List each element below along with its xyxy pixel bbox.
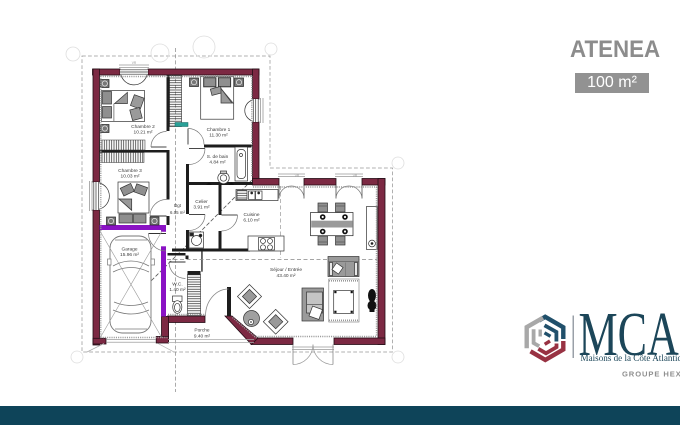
svg-text:Chambre 2: Chambre 2	[131, 124, 155, 130]
svg-text:Maisons de la Côte Atlantique: Maisons de la Côte Atlantique	[581, 353, 680, 363]
svg-text:Séjour / Entrée: Séjour / Entrée	[270, 267, 302, 273]
svg-text:VR: VR	[353, 174, 358, 178]
svg-text:43.40 m²: 43.40 m²	[277, 273, 296, 279]
svg-text:6.10 m²: 6.10 m²	[243, 218, 260, 224]
svg-text:Dgt: Dgt	[174, 203, 182, 208]
svg-text:9.40 m²: 9.40 m²	[194, 334, 211, 340]
svg-text:15.96 m²: 15.96 m²	[120, 252, 139, 258]
svg-text:Chambre 3: Chambre 3	[118, 168, 142, 174]
svg-text:VR: VR	[295, 174, 300, 178]
svg-text:Celier: Celier	[195, 199, 208, 205]
svg-text:GROUPE HEXAOM: GROUPE HEXAOM	[622, 370, 680, 379]
svg-text:Porche: Porche	[194, 328, 210, 334]
svg-text:Chambre 1: Chambre 1	[207, 127, 231, 133]
svg-text:10.03 m²: 10.03 m²	[121, 174, 140, 180]
svg-text:3.91 m²: 3.91 m²	[193, 205, 210, 211]
svg-text:VR: VR	[132, 61, 137, 65]
svg-text:W.C.: W.C.	[172, 282, 182, 288]
svg-text:11.30 m²: 11.30 m²	[209, 133, 228, 139]
svg-text:Garage: Garage	[122, 247, 138, 253]
svg-text:10.21 m²: 10.21 m²	[134, 130, 153, 136]
svg-text:6.05 m²: 6.05 m²	[170, 210, 185, 215]
svg-text:1.40 m²: 1.40 m²	[169, 287, 186, 293]
svg-text:4.84 m²: 4.84 m²	[209, 160, 226, 166]
svg-text:S. de bain: S. de bain	[207, 154, 229, 160]
svg-text:Cuisine: Cuisine	[244, 212, 260, 218]
